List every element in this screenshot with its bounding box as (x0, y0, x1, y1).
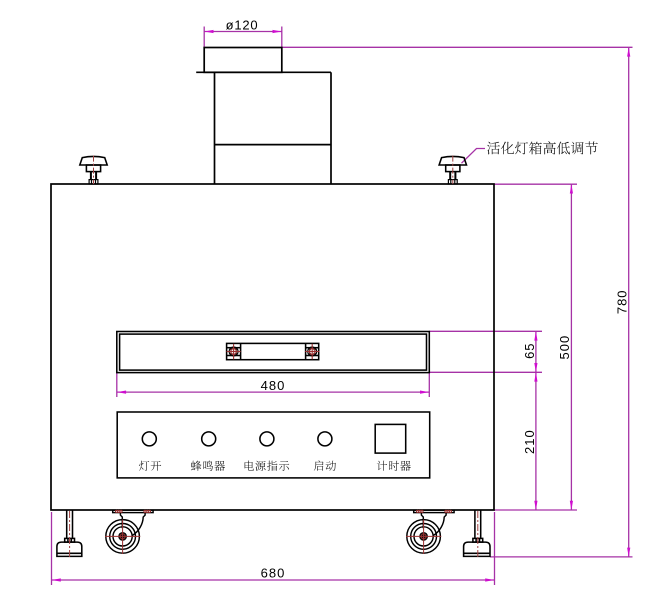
svg-text:780: 780 (615, 289, 630, 314)
svg-text:ø120: ø120 (226, 17, 259, 32)
svg-text:680: 680 (261, 566, 286, 581)
svg-text:480: 480 (261, 378, 286, 393)
svg-text:500: 500 (557, 335, 572, 360)
svg-text:65: 65 (522, 342, 537, 358)
svg-text:210: 210 (522, 429, 537, 454)
